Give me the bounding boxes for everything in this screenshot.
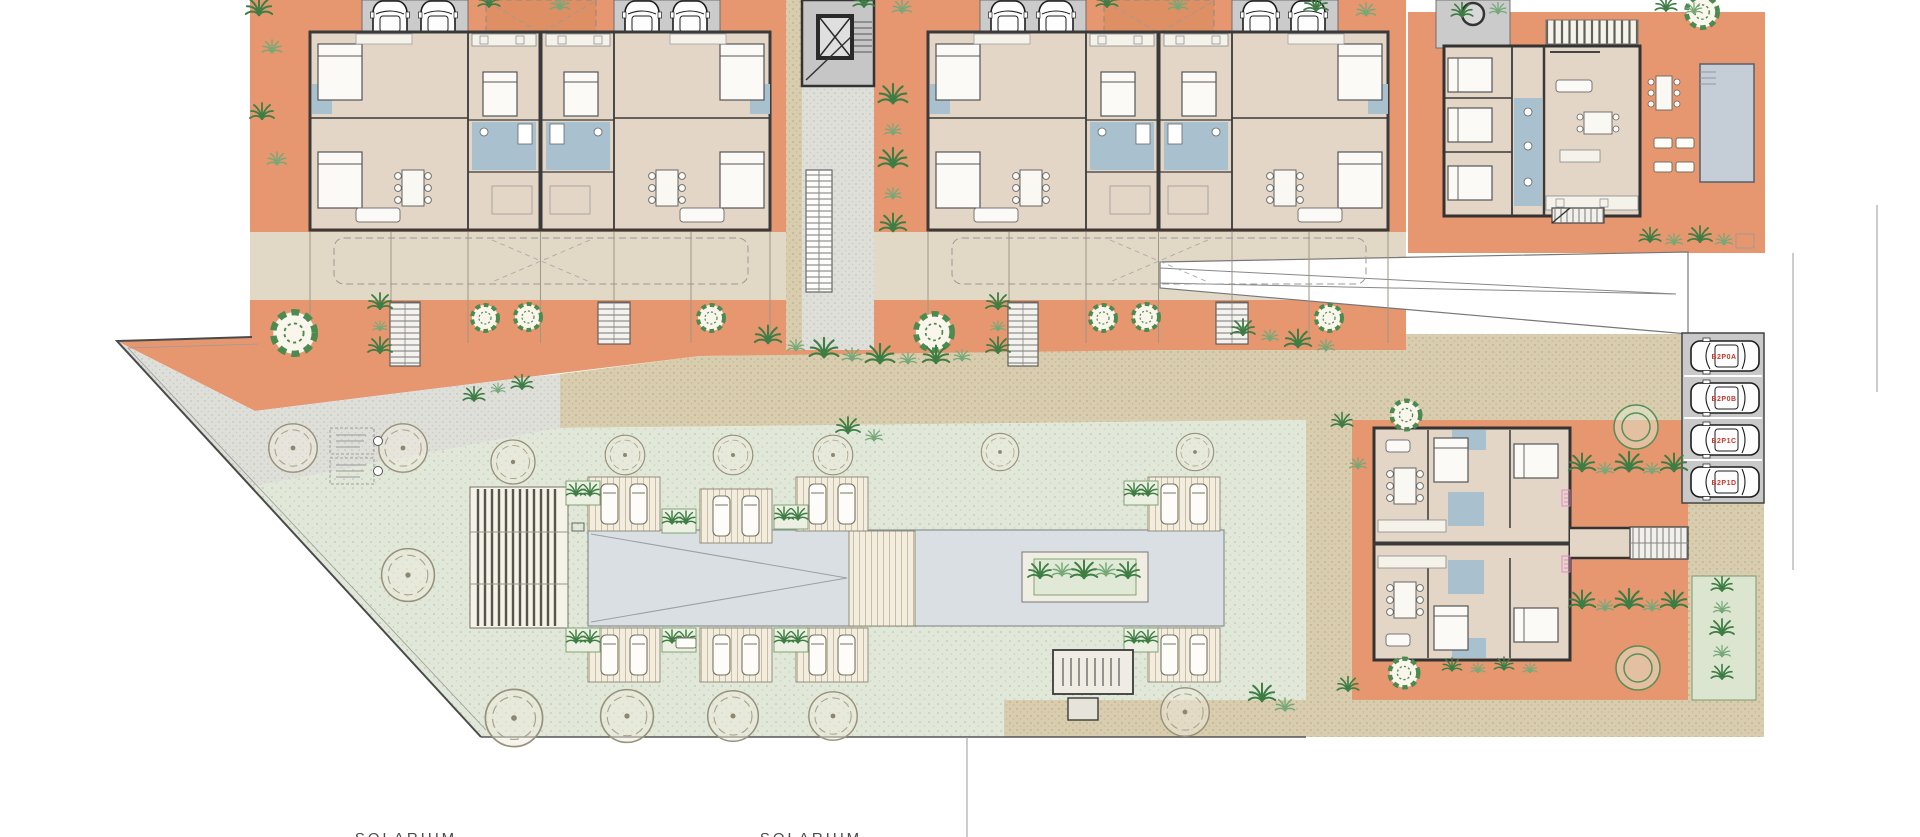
sofa [1386,440,1410,452]
dining-table [1584,112,1612,134]
lounger-icon [1654,138,1672,148]
bed [1434,438,1468,482]
garden-stair-icon [598,302,630,344]
bathroom [1448,560,1484,594]
tree-icon [485,689,542,746]
planter [662,509,696,533]
ring-palm-bed-icon [1316,305,1342,331]
spa-deck [1053,650,1133,694]
parking-space-label: B2P0A [1711,354,1736,361]
pergola-slats [1546,20,1638,44]
tree-icon [713,435,753,475]
sun-deck [700,489,772,543]
planter [1124,628,1158,652]
tree-icon [379,424,427,472]
planter [1124,481,1158,505]
bed [1514,608,1558,642]
site-plan-page: B2P0A B2P0B B2P1C B2P1D [0,0,1920,837]
planter [566,481,600,505]
ring-palm-bed-icon [1390,659,1419,688]
dining-table [1387,468,1424,504]
tree-icon [809,692,857,740]
tree-icon [813,435,853,475]
bed [1514,444,1558,478]
lounger-icon [1676,162,1694,172]
ring-palm-bed-icon [472,305,498,331]
tree-icon [491,440,535,484]
equipment-box [1068,698,1098,720]
bed [1448,166,1492,200]
palm-icon [1655,0,1677,11]
garden-stair-icon [390,302,420,366]
ring-palm-bed-icon [273,312,315,354]
sun-deck [700,628,772,682]
solarium-label: SOLARIUM [760,830,862,837]
note-marker-icon [374,467,383,476]
sun-deck [1148,477,1220,531]
sun-deck [1148,628,1220,682]
tree-icon [708,691,759,742]
garden-stair-icon [1008,302,1038,366]
tree-icon [981,433,1018,470]
hedge-strip [1692,576,1756,700]
south-east-path [1306,700,1764,737]
bed [1448,108,1492,142]
tree-icon [1176,433,1213,470]
lounger-icon [1654,162,1672,172]
planter [774,505,808,529]
tree-icon [605,435,645,475]
tree-icon [1161,688,1209,736]
tree-icon [1616,646,1660,690]
sofa [1556,80,1592,92]
villa-pool [1700,64,1754,182]
planter [566,628,600,652]
tree-icon [269,424,317,472]
pool-bridge-deck [849,531,915,626]
plan-labels: SOLARIUM SOLARIUM [355,830,862,837]
ring-palm-bed-icon [1686,0,1717,28]
bed [1434,606,1468,650]
parking-space-label: B2P1D [1711,480,1736,487]
walkway-paving [786,0,802,350]
bench [676,638,696,648]
solarium-label: SOLARIUM [355,830,457,837]
tree-icon [382,549,435,602]
note-marker-icon [374,437,383,446]
south-path [1004,700,1306,737]
ring-palm-bed-icon [1133,304,1159,330]
tree-icon [1614,405,1658,449]
ring-palm-bed-icon [1090,305,1116,331]
parking-space-label: B2P0B [1711,396,1736,403]
lounger-icon [1676,138,1694,148]
parking-space-label: B2P1C [1711,438,1736,445]
east-curve-path [1306,420,1352,700]
kitchen-counter [1378,556,1446,568]
kitchen-island [1560,150,1600,162]
ring-palm-bed-icon [1392,401,1421,430]
ring-palm-bed-icon [916,314,952,350]
parking-area: B2P0A B2P0B B2P1C B2P1D [1682,333,1764,503]
ring-palm-bed-icon [515,304,541,330]
bathroom [1448,492,1484,526]
sofa [1386,634,1410,646]
ring-palm-bed-icon [698,305,724,331]
access-corridor [1570,528,1630,558]
tree-icon [601,690,654,743]
bed [1448,58,1492,92]
kitchen-counter [1378,520,1446,532]
dining-table [1387,582,1424,618]
planter [774,628,808,652]
outdoor-table [1656,76,1672,110]
site-plan-canvas: B2P0A B2P0B B2P1C B2P1D [0,0,1920,837]
